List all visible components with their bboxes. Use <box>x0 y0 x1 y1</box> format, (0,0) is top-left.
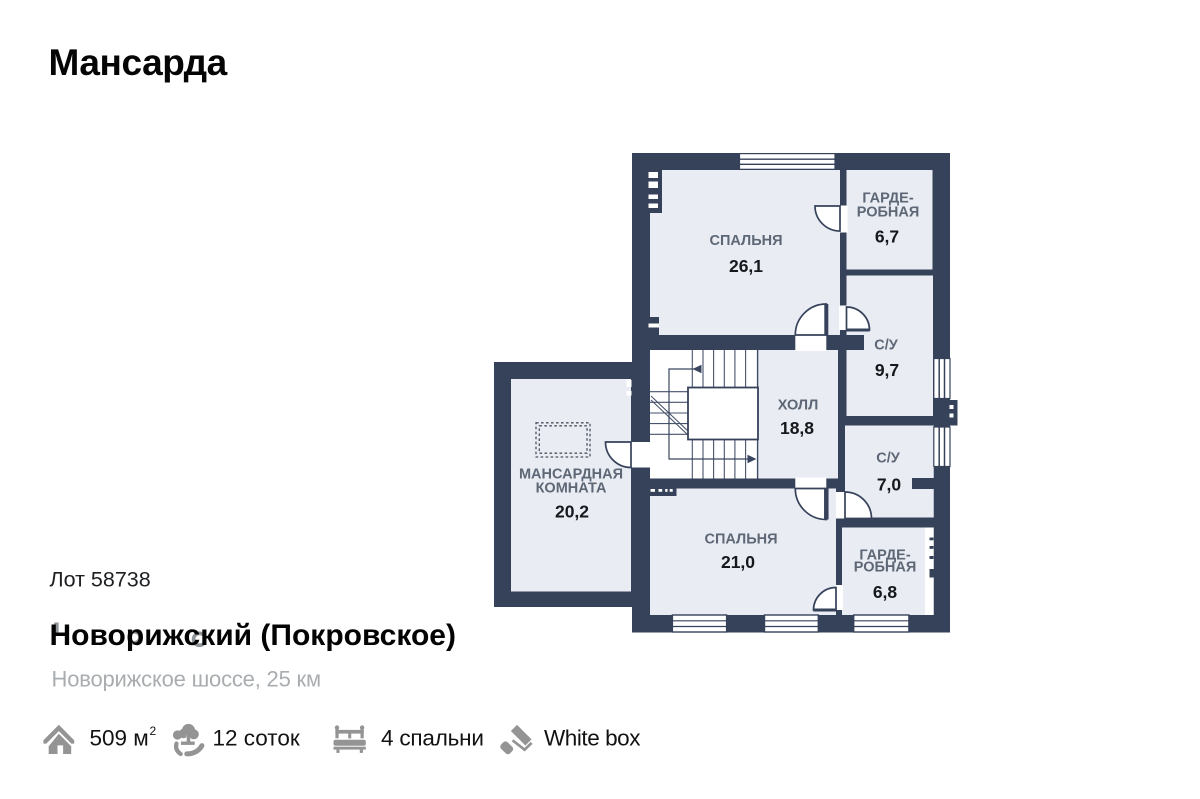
svg-text:РОБНАЯ: РОБНАЯ <box>857 205 920 221</box>
svg-text:Мансарда: Мансарда <box>49 42 228 83</box>
svg-text:9,7: 9,7 <box>875 360 899 380</box>
svg-text:РОБНАЯ: РОБНАЯ <box>854 560 917 576</box>
svg-text:6,8: 6,8 <box>873 582 898 602</box>
svg-text:КОМНАТА: КОМНАТА <box>536 481 607 497</box>
svg-text:Новорижское шоссе, 25 км: Новорижское шоссе, 25 км <box>52 667 321 692</box>
svg-text:С/У: С/У <box>876 451 901 467</box>
svg-text:12 соток: 12 соток <box>213 726 300 751</box>
svg-text:20,2: 20,2 <box>555 501 589 521</box>
svg-text:21,0: 21,0 <box>721 552 755 572</box>
svg-text:ХОЛЛ: ХОЛЛ <box>778 398 819 414</box>
svg-text:6,7: 6,7 <box>875 227 899 247</box>
svg-text:С/У: С/У <box>874 338 899 354</box>
svg-text:7,0: 7,0 <box>877 474 902 494</box>
svg-text:СПАЛЬНЯ: СПАЛЬНЯ <box>709 233 782 249</box>
svg-text:509 м: 509 м <box>90 726 149 751</box>
svg-text:2: 2 <box>150 724 157 738</box>
svg-text:White box: White box <box>544 726 641 751</box>
svg-text:Лот 58738: Лот 58738 <box>50 568 151 592</box>
svg-text:26,1: 26,1 <box>729 256 763 276</box>
svg-text:18,8: 18,8 <box>780 418 814 438</box>
svg-text:Новорижский (Покровское): Новорижский (Покровское) <box>50 619 456 652</box>
svg-text:4 спальни: 4 спальни <box>381 726 484 751</box>
svg-text:СПАЛЬНЯ: СПАЛЬНЯ <box>704 532 777 548</box>
